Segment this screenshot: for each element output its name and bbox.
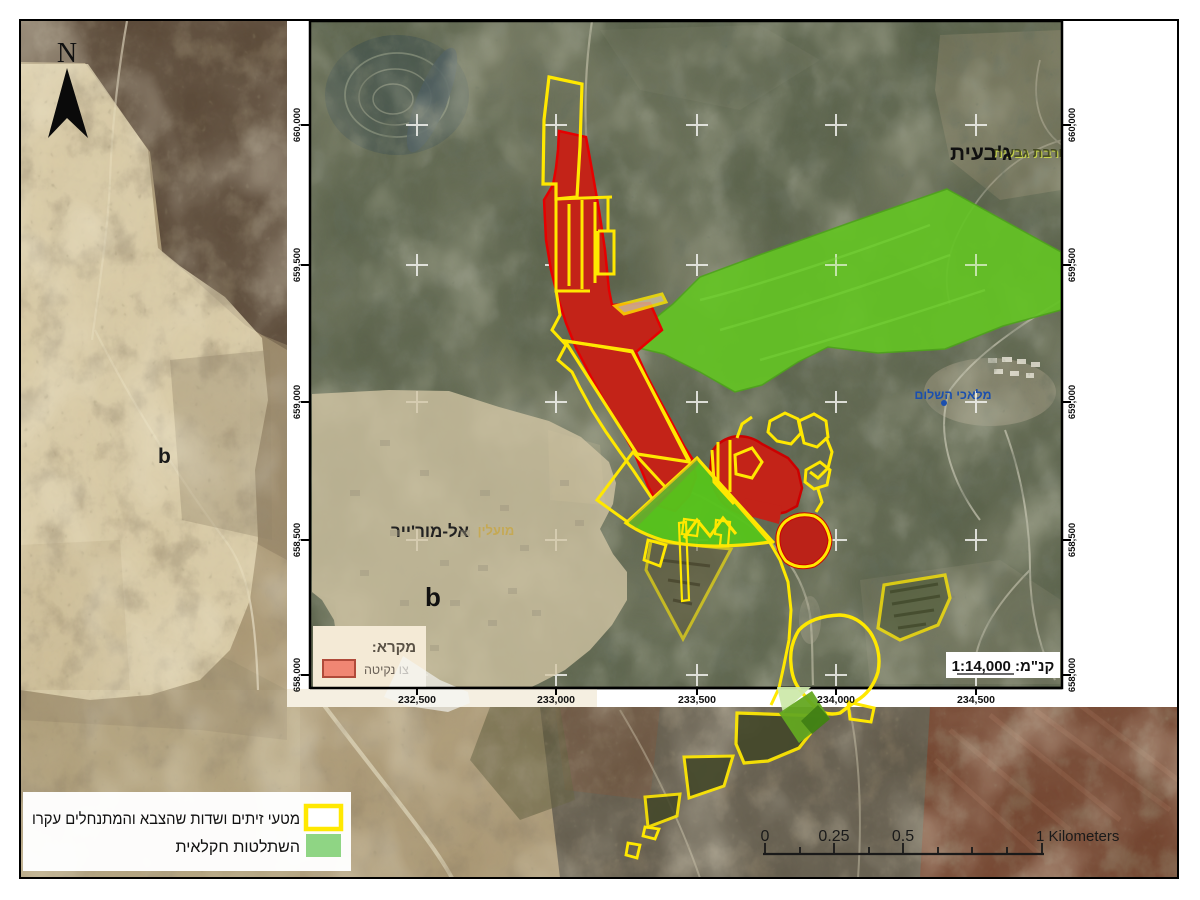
svg-text:658,500: 658,500 (292, 523, 303, 557)
svg-text:660,000: 660,000 (1067, 108, 1078, 142)
svg-text:232,500: 232,500 (398, 694, 436, 706)
svg-text:233,000: 233,000 (537, 694, 575, 706)
svg-text:659,500: 659,500 (292, 248, 303, 282)
svg-text:233,500: 233,500 (678, 694, 716, 706)
svg-text:658,000: 658,000 (292, 658, 303, 692)
svg-text:מקרא:: מקרא: (372, 639, 416, 656)
svg-text:N: N (57, 38, 77, 69)
svg-text:1 Kilometers: 1 Kilometers (1036, 828, 1119, 845)
svg-text:אל-מור'ייר: אל-מור'ייר (391, 522, 469, 541)
svg-text:0.25: 0.25 (818, 828, 849, 845)
svg-text:קנ"מ: 1:14,000: קנ"מ: 1:14,000 (952, 658, 1055, 675)
svg-text:659,000: 659,000 (292, 385, 303, 419)
svg-text:659,500: 659,500 (1067, 248, 1078, 282)
svg-text:מטעי זיתים ושדות שהצבא והמתנחל: מטעי זיתים ושדות שהצבא והמתנחלים עקרו (32, 810, 300, 828)
svg-text:מלאכי השלום: מלאכי השלום (914, 388, 991, 402)
svg-text:השתלטות חקלאית: השתלטות חקלאית (175, 838, 300, 856)
svg-text:659,000: 659,000 (1067, 385, 1078, 419)
svg-text:660,000: 660,000 (292, 108, 303, 142)
svg-text:234,500: 234,500 (957, 694, 995, 706)
svg-text:658,000: 658,000 (1067, 658, 1078, 692)
svg-text:0: 0 (761, 828, 770, 845)
svg-text:b: b (158, 445, 171, 468)
svg-text:234,000: 234,000 (817, 694, 855, 706)
svg-text:658,500: 658,500 (1067, 523, 1078, 557)
svg-text:0.5: 0.5 (892, 828, 914, 845)
svg-text:מועלין: מועלין (478, 523, 515, 538)
svg-text:b: b (425, 582, 441, 612)
svg-text:ג'בעית: ג'בעית (950, 142, 1012, 165)
